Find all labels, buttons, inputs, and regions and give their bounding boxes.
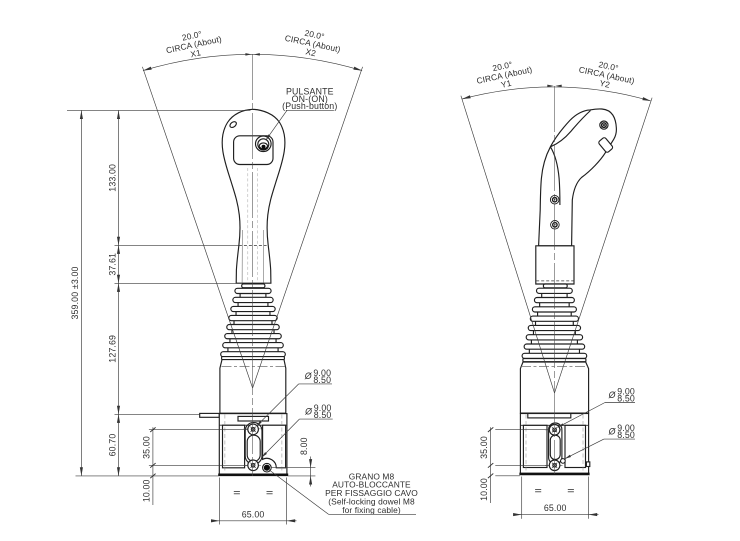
svg-text:8.50: 8.50 xyxy=(313,375,331,385)
svg-text:127.69: 127.69 xyxy=(107,335,117,363)
svg-text:8.50: 8.50 xyxy=(617,394,635,404)
svg-text:359.00 ±3.00: 359.00 ±3.00 xyxy=(70,266,80,319)
svg-text:65.00: 65.00 xyxy=(544,503,567,513)
svg-text:10.00: 10.00 xyxy=(141,479,151,502)
svg-text:(Push-button): (Push-button) xyxy=(282,101,337,111)
svg-text:37.61: 37.61 xyxy=(107,253,117,276)
svg-text:35.00: 35.00 xyxy=(141,436,151,459)
svg-text:for fixing cable): for fixing cable) xyxy=(342,505,401,515)
svg-text:65.00: 65.00 xyxy=(242,509,265,519)
svg-text:10.00: 10.00 xyxy=(479,478,489,501)
svg-text:8.00: 8.00 xyxy=(299,437,309,455)
svg-text:Ø: Ø xyxy=(608,426,617,436)
svg-text:Ø: Ø xyxy=(304,406,313,416)
svg-text:133.00: 133.00 xyxy=(107,164,117,192)
svg-text:Ø: Ø xyxy=(304,371,313,381)
svg-text:8.50: 8.50 xyxy=(617,430,635,440)
svg-text:35.00: 35.00 xyxy=(479,436,489,459)
svg-text:60.70: 60.70 xyxy=(107,434,117,457)
svg-text:8.50: 8.50 xyxy=(314,410,332,420)
svg-text:Ø: Ø xyxy=(608,390,617,400)
